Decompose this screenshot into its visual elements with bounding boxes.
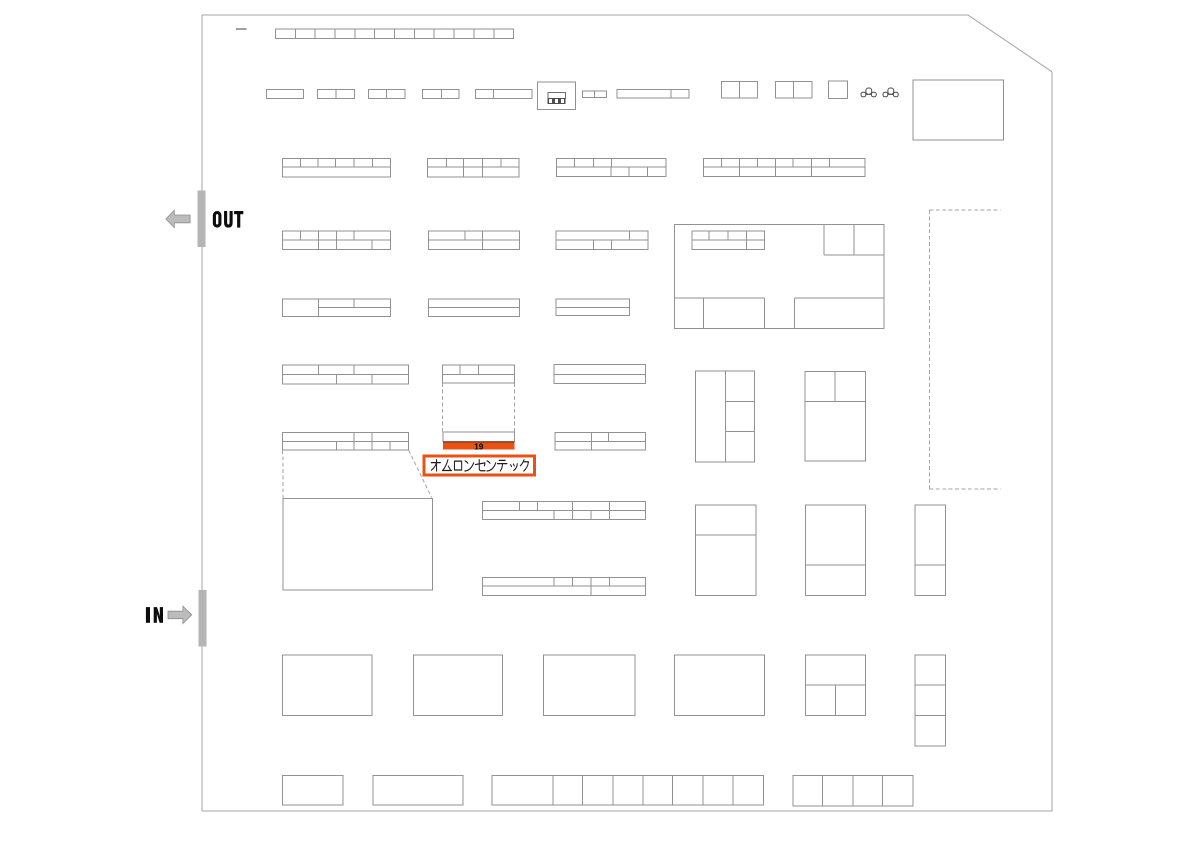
svg-text:19: 19 — [474, 441, 484, 451]
